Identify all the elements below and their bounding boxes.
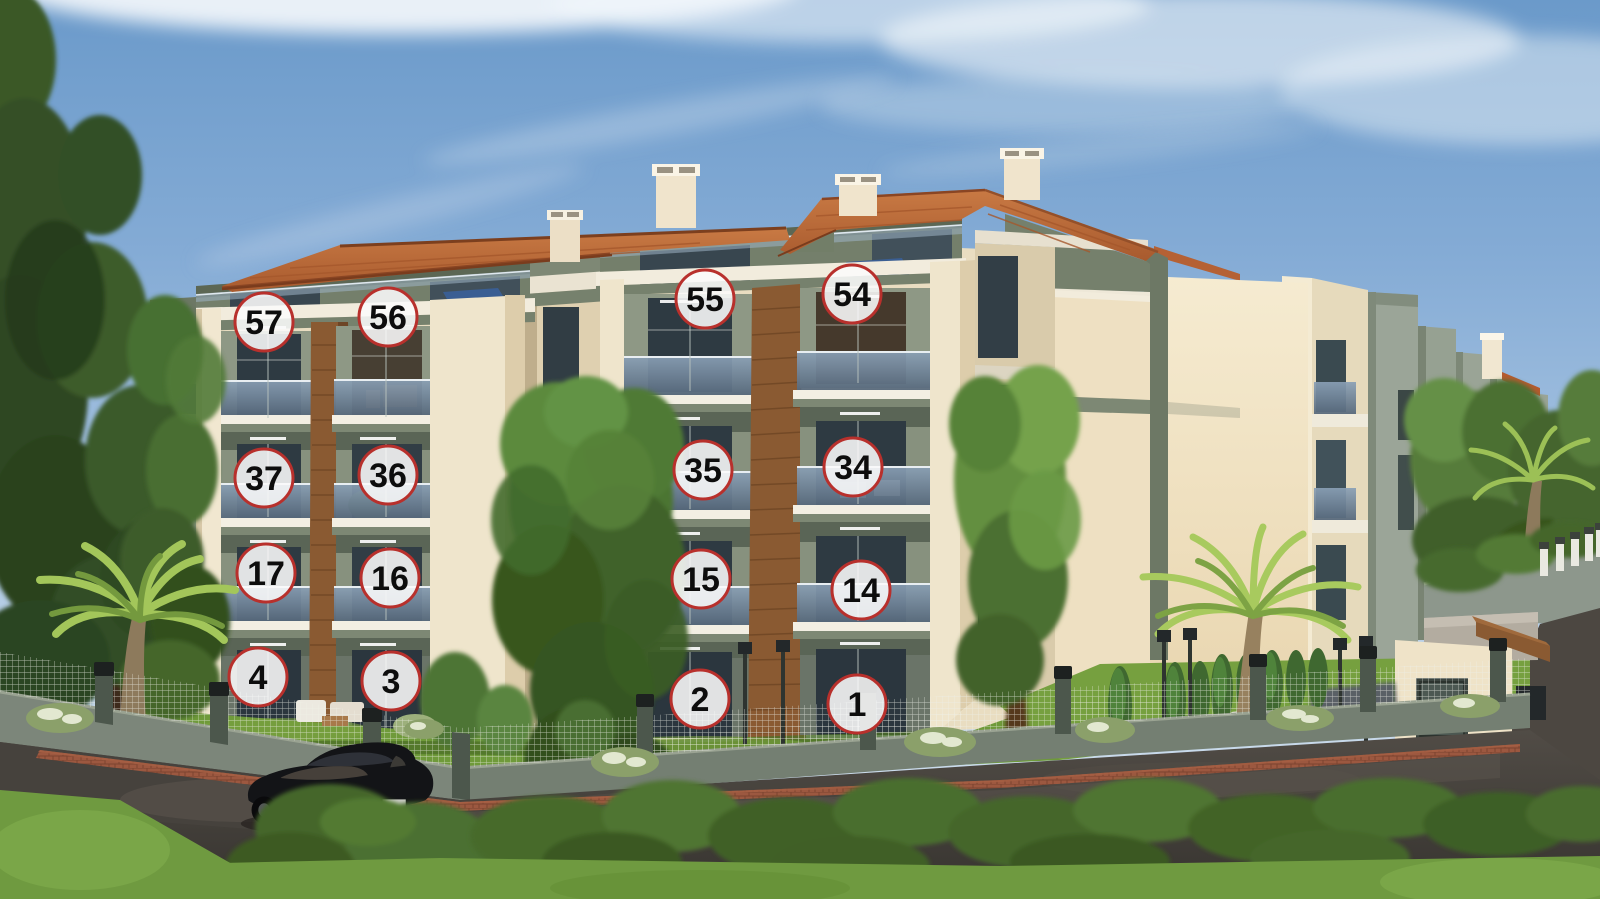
svg-text:2: 2: [691, 681, 710, 719]
svg-text:16: 16: [371, 560, 409, 598]
svg-text:55: 55: [686, 281, 724, 319]
svg-text:34: 34: [834, 449, 872, 487]
svg-text:3: 3: [382, 663, 401, 701]
svg-text:54: 54: [833, 276, 871, 314]
svg-text:57: 57: [245, 304, 283, 342]
svg-text:36: 36: [369, 457, 407, 495]
svg-text:14: 14: [842, 572, 880, 610]
svg-text:17: 17: [247, 555, 285, 593]
svg-text:56: 56: [369, 299, 407, 337]
svg-text:4: 4: [249, 659, 268, 697]
svg-text:37: 37: [245, 460, 283, 498]
svg-text:15: 15: [682, 561, 720, 599]
svg-text:35: 35: [684, 452, 722, 490]
svg-text:1: 1: [848, 686, 867, 724]
